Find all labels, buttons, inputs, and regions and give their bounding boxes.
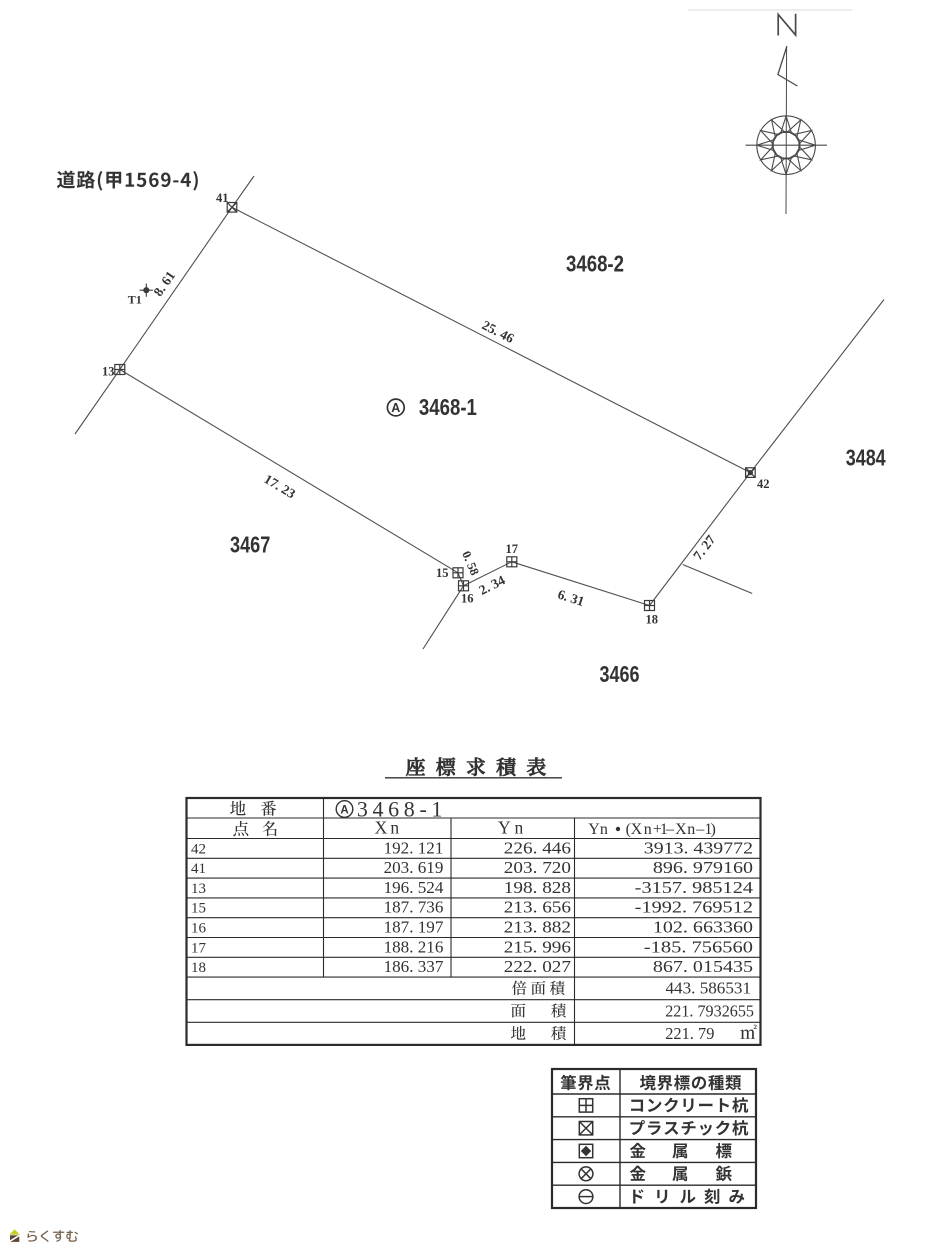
svg-text:8. 61: 8. 61 [150, 268, 178, 299]
svg-text:15: 15 [191, 901, 206, 917]
svg-text:3466: 3466 [600, 661, 640, 687]
svg-text:198. 828: 198. 828 [504, 878, 571, 897]
svg-text:187. 736: 187. 736 [384, 898, 444, 917]
svg-text:222. 027: 222. 027 [504, 957, 571, 976]
svg-text:Yn: Yn [498, 818, 524, 838]
svg-text:-1992. 769512: -1992. 769512 [635, 898, 753, 917]
svg-text:3913. 439772: 3913. 439772 [644, 838, 753, 857]
svg-text:(Xn+1–Xn–1): (Xn+1–Xn–1) [626, 821, 716, 838]
svg-text:15: 15 [436, 566, 449, 580]
svg-text:16: 16 [461, 592, 474, 606]
svg-text:7. 27: 7. 27 [690, 532, 718, 563]
svg-text:13: 13 [102, 365, 115, 379]
svg-text:187. 197: 187. 197 [384, 918, 444, 937]
svg-text:221. 7932655: 221. 7932655 [665, 1001, 754, 1020]
svg-text:25. 46: 25. 46 [480, 317, 517, 346]
svg-text:213. 656: 213. 656 [504, 898, 571, 917]
svg-text:215. 996: 215. 996 [504, 937, 571, 956]
svg-text:-185. 756560: -185. 756560 [644, 937, 753, 956]
svg-text:Yn: Yn [588, 821, 608, 838]
svg-text:A: A [340, 804, 348, 816]
svg-text:17. 23: 17. 23 [261, 471, 298, 501]
svg-text:196. 524: 196. 524 [384, 878, 444, 897]
svg-text:6. 31: 6. 31 [556, 587, 587, 610]
svg-text:3468-1: 3468-1 [419, 394, 477, 420]
svg-text:18: 18 [646, 613, 659, 627]
svg-text:Xn: Xn [375, 818, 400, 838]
svg-text:203. 720: 203. 720 [504, 858, 571, 877]
svg-text:42: 42 [191, 841, 206, 857]
svg-text:867. 015435: 867. 015435 [653, 957, 753, 976]
svg-text:17: 17 [506, 542, 519, 556]
svg-text:3484: 3484 [846, 444, 886, 470]
svg-text:18: 18 [191, 960, 206, 976]
svg-text:41: 41 [191, 861, 206, 877]
svg-text:188. 216: 188. 216 [384, 937, 444, 956]
svg-text:41: 41 [216, 191, 229, 205]
svg-text:3467: 3467 [230, 532, 270, 558]
svg-text:226. 446: 226. 446 [504, 838, 571, 857]
svg-text:203. 619: 203. 619 [384, 858, 444, 877]
svg-text:192. 121: 192. 121 [384, 838, 444, 857]
svg-text:16: 16 [191, 921, 207, 937]
svg-text:443. 586531: 443. 586531 [666, 979, 752, 998]
svg-text:213. 882: 213. 882 [504, 918, 571, 937]
svg-text:17: 17 [191, 940, 207, 956]
svg-text:T1: T1 [128, 293, 142, 307]
svg-text:186. 337: 186. 337 [384, 957, 444, 976]
svg-text:3468-2: 3468-2 [566, 251, 624, 277]
svg-text:102. 663360: 102. 663360 [653, 918, 753, 937]
svg-text:13: 13 [191, 881, 206, 897]
svg-text:A: A [391, 401, 400, 415]
svg-text:-3157. 985124: -3157. 985124 [635, 878, 753, 897]
svg-text:221. 79: 221. 79 [665, 1024, 714, 1043]
svg-text:42: 42 [757, 477, 770, 491]
svg-text:2. 34: 2. 34 [477, 572, 508, 598]
svg-text:896. 979160: 896. 979160 [653, 858, 753, 877]
